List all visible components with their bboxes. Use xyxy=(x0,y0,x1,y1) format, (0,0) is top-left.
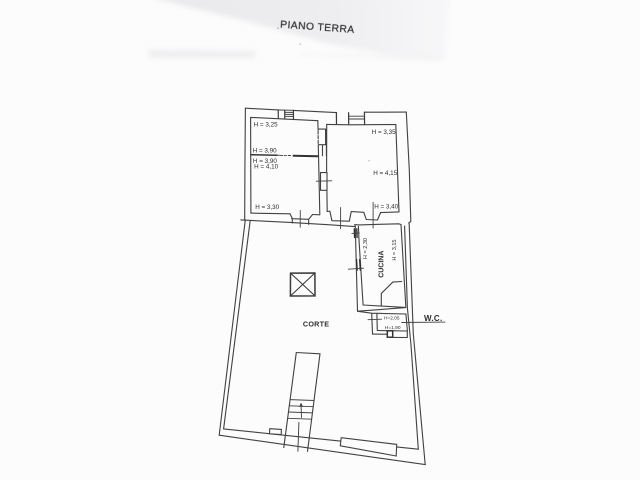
svg-text:H = 3,90: H = 3,90 xyxy=(253,148,277,155)
svg-text:H=2,05: H=2,05 xyxy=(384,316,400,322)
svg-text:W.C.: W.C. xyxy=(424,314,443,323)
svg-text:CORTE: CORTE xyxy=(303,320,329,329)
svg-text:H = 2,30: H = 2,30 xyxy=(363,238,369,259)
svg-text:H = 3,35: H = 3,35 xyxy=(372,129,396,136)
svg-text:CUCINA: CUCINA xyxy=(378,251,385,278)
svg-text:H = 4,10: H = 4,10 xyxy=(254,164,278,171)
svg-text:H = 3,25: H = 3,25 xyxy=(254,121,278,128)
svg-text:H = 3,30: H = 3,30 xyxy=(255,204,279,211)
svg-text:H = 3,40: H = 3,40 xyxy=(374,203,398,210)
svg-text:H = 4,15: H = 4,15 xyxy=(373,170,397,177)
svg-text:H = 3,15: H = 3,15 xyxy=(392,239,398,260)
svg-text:H=1,90: H=1,90 xyxy=(385,325,401,331)
